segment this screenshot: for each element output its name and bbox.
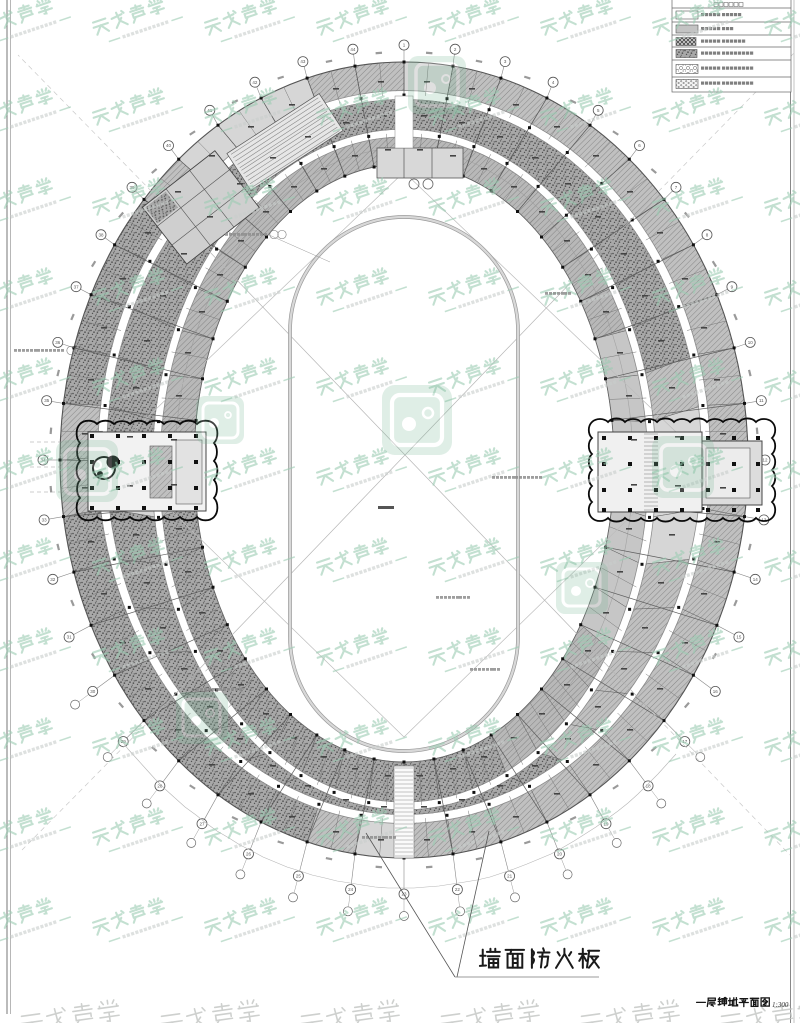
svg-text:10: 10 — [748, 340, 754, 345]
svg-text:36: 36 — [55, 340, 61, 345]
svg-text:15: 15 — [736, 635, 742, 640]
svg-text:24: 24 — [348, 887, 354, 892]
svg-text:30: 30 — [90, 689, 96, 694]
svg-text:12: 12 — [762, 458, 768, 463]
svg-text:1:300: 1:300 — [772, 1001, 789, 1009]
svg-text:32: 32 — [50, 577, 56, 582]
svg-text:40: 40 — [166, 143, 172, 148]
svg-text:44: 44 — [350, 47, 356, 52]
svg-text:27: 27 — [199, 821, 205, 826]
svg-text:16: 16 — [713, 689, 719, 694]
svg-text:26: 26 — [246, 852, 252, 857]
svg-text:14: 14 — [753, 577, 759, 582]
svg-text:37: 37 — [74, 284, 80, 289]
svg-text:25: 25 — [296, 874, 302, 879]
svg-text:38: 38 — [98, 232, 104, 237]
svg-text:43: 43 — [300, 59, 306, 64]
svg-text:35: 35 — [44, 398, 50, 403]
svg-text:20: 20 — [557, 852, 563, 857]
svg-text:31: 31 — [67, 635, 73, 640]
svg-text:22: 22 — [455, 887, 461, 892]
svg-text:11: 11 — [759, 398, 764, 403]
svg-text:42: 42 — [252, 80, 258, 85]
svg-text:21: 21 — [507, 874, 513, 879]
svg-text:33: 33 — [42, 518, 48, 523]
